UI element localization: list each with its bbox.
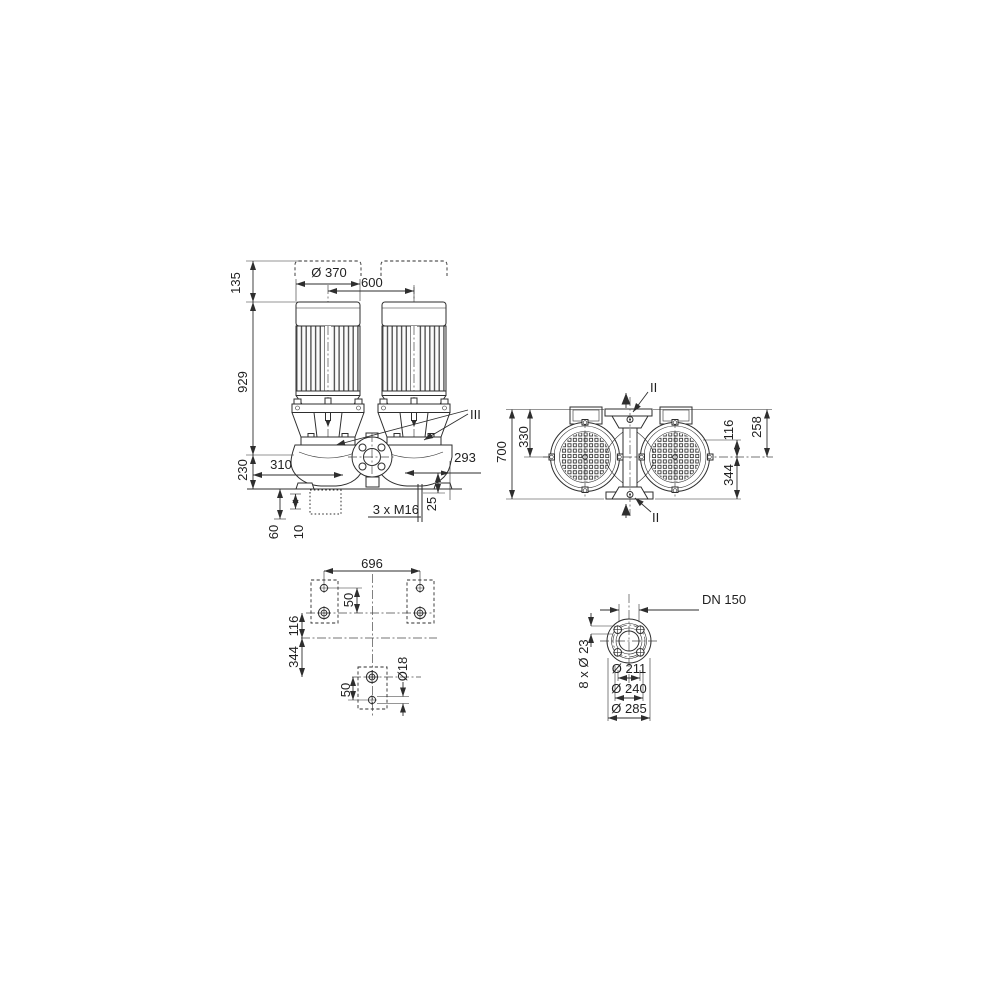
anchor-plate-dashed — [311, 580, 338, 623]
dim-116: 116 — [286, 616, 301, 637]
flange-view: DN 150 8 x Ø 23 Ø 211 Ø 240 Ø 285 — [576, 592, 746, 721]
dim-344: 344 — [721, 464, 736, 486]
dim-dn150: DN 150 — [702, 592, 746, 607]
flange-dimensions: DN 150 8 x Ø 23 Ø 211 Ø 240 Ø 285 — [576, 592, 746, 721]
dim-dia211: Ø 211 — [612, 661, 646, 676]
dim-10: 10 — [291, 525, 306, 539]
dim-25: 25 — [424, 497, 439, 511]
top-view: 700 330 116 258 344 II II — [494, 380, 773, 525]
anchor-holes — [317, 583, 427, 705]
foundation-view: 696 50 116 344 50 Ø18 — [286, 556, 437, 716]
pump-foot-right — [434, 483, 452, 489]
center-foot — [366, 477, 379, 487]
dim-600: 600 — [361, 275, 383, 290]
top-view-dimensions: 700 330 116 258 344 II II — [494, 380, 772, 525]
section-label-iii: III — [470, 407, 481, 422]
section-label-ii-top: II — [650, 380, 657, 395]
dim-696: 696 — [361, 556, 383, 571]
dim-700: 700 — [494, 441, 509, 463]
dim-dia370: Ø 370 — [311, 265, 346, 280]
dim-258: 258 — [749, 416, 764, 438]
dim-344: 344 — [286, 646, 301, 668]
anchor-plate-dashed — [407, 580, 434, 623]
fan-cover — [296, 302, 360, 326]
motor-base-rim — [296, 391, 360, 396]
dim-929: 929 — [235, 371, 250, 393]
dim-293: 293 — [454, 450, 476, 465]
section-label-ii-bottom: II — [652, 510, 659, 525]
dim-50-bottom: 50 — [338, 683, 353, 697]
dim-116: 116 — [721, 420, 736, 441]
pump-dimensional-drawing: 135 929 230 Ø 370 600 310 293 25 3 x M16 — [0, 0, 1000, 1000]
dim-135: 135 — [228, 272, 243, 294]
shaft-coupling — [326, 413, 331, 421]
pump-foot-left — [296, 483, 314, 489]
foundation-dimensions: 696 50 116 344 50 Ø18 — [286, 556, 420, 716]
dim-dia285: Ø 285 — [611, 701, 646, 716]
dim-8xdia23: 8 x Ø 23 — [576, 639, 591, 688]
motor-flange-plate — [292, 404, 364, 413]
front-view: 135 929 230 Ø 370 600 310 293 25 3 x M16 — [228, 261, 481, 539]
dim-60: 60 — [266, 525, 281, 539]
dim-230: 230 — [235, 459, 250, 481]
dim-dia240: Ø 240 — [611, 681, 646, 696]
motor-fan-top — [549, 407, 623, 497]
dim-3xM16: 3 x M16 — [373, 502, 419, 517]
foundation-pad-dotted — [310, 490, 341, 514]
dim-dia18: Ø18 — [395, 657, 410, 682]
dim-330: 330 — [516, 426, 531, 448]
dim-50-top: 50 — [341, 593, 356, 607]
dim-310: 310 — [270, 457, 292, 472]
seal-housing — [301, 437, 355, 445]
